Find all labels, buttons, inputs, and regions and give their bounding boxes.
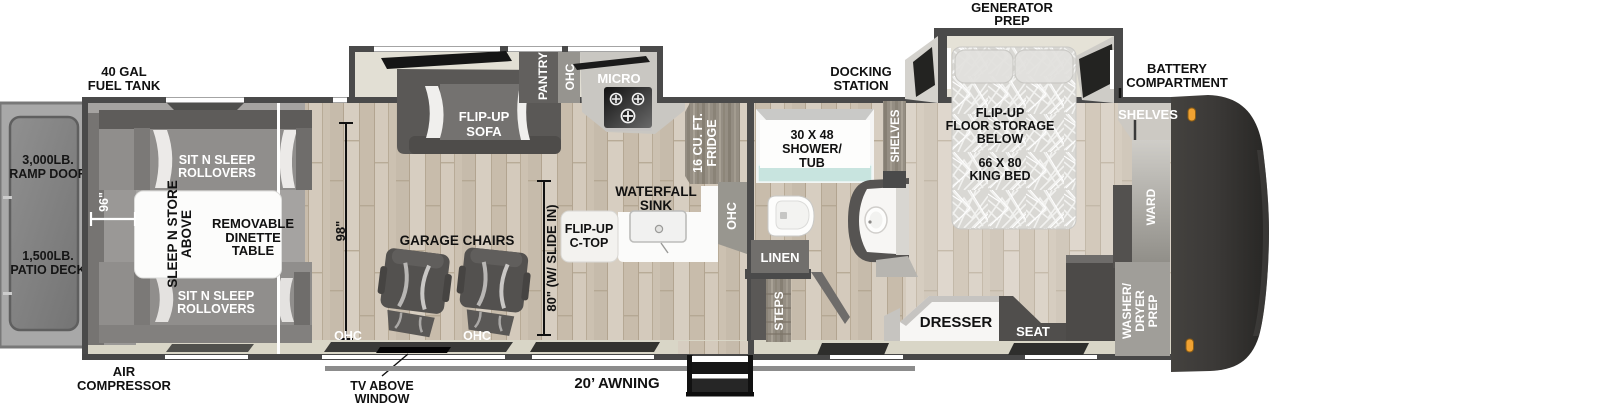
svg-text:FLIP-UP: FLIP-UP — [976, 106, 1025, 120]
svg-text:OHC: OHC — [725, 202, 739, 230]
svg-text:BATTERY: BATTERY — [1147, 61, 1207, 76]
svg-text:66 X 80: 66 X 80 — [978, 156, 1021, 170]
svg-text:SINK: SINK — [640, 198, 673, 213]
svg-text:ROLLOVERS: ROLLOVERS — [177, 302, 255, 316]
svg-text:SOFA: SOFA — [466, 124, 502, 139]
svg-text:SIT N SLEEP: SIT N SLEEP — [178, 289, 254, 303]
svg-text:COMPARTMENT: COMPARTMENT — [1126, 75, 1228, 90]
svg-text:DOCKING: DOCKING — [830, 64, 891, 79]
svg-text:STEPS: STEPS — [772, 291, 786, 330]
svg-text:SHOWER/: SHOWER/ — [782, 142, 842, 156]
svg-text:FUEL TANK: FUEL TANK — [88, 78, 161, 93]
svg-text:OHC: OHC — [563, 63, 577, 90]
svg-text:BELOW: BELOW — [977, 132, 1024, 146]
svg-text:SHELVES: SHELVES — [890, 109, 902, 162]
svg-text:PREP: PREP — [1146, 295, 1160, 328]
svg-text:SEAT: SEAT — [1016, 324, 1050, 339]
svg-text:20’ AWNING: 20’ AWNING — [574, 375, 659, 392]
svg-text:FLIP-UP: FLIP-UP — [459, 109, 510, 124]
svg-text:3,000LB.: 3,000LB. — [22, 153, 73, 167]
svg-text:ROLLOVERS: ROLLOVERS — [178, 166, 256, 180]
svg-text:COMPRESSOR: COMPRESSOR — [77, 378, 172, 393]
svg-text:FRIDGE: FRIDGE — [705, 119, 719, 166]
svg-text:KING BED: KING BED — [969, 169, 1030, 183]
svg-text:FLIP-UP: FLIP-UP — [565, 222, 614, 236]
svg-text:ABOVE: ABOVE — [179, 210, 194, 258]
svg-text:SIT N SLEEP: SIT N SLEEP — [179, 153, 255, 167]
svg-text:GARAGE CHAIRS: GARAGE CHAIRS — [400, 233, 515, 248]
svg-text:16 CU. FT.: 16 CU. FT. — [691, 113, 705, 173]
svg-text:RAMP DOOR: RAMP DOOR — [9, 167, 87, 181]
svg-text:DRESSER: DRESSER — [920, 314, 993, 331]
svg-text:TV ABOVE: TV ABOVE — [350, 379, 413, 393]
svg-text:DRYER: DRYER — [1133, 290, 1147, 332]
svg-text:TUB: TUB — [799, 156, 825, 170]
svg-text:WARD: WARD — [1144, 188, 1158, 225]
svg-text:OHC: OHC — [463, 329, 491, 343]
svg-text:PANTRY: PANTRY — [536, 52, 550, 100]
svg-text:LINEN: LINEN — [761, 250, 800, 265]
svg-text:AIR: AIR — [113, 364, 136, 379]
svg-text:SHELVES: SHELVES — [1118, 107, 1178, 122]
svg-text:WINDOW: WINDOW — [355, 392, 410, 404]
svg-text:TABLE: TABLE — [232, 243, 275, 258]
svg-text:REMOVABLE: REMOVABLE — [212, 216, 294, 231]
svg-text:1,500LB.: 1,500LB. — [22, 249, 73, 263]
svg-text:WASHER/: WASHER/ — [1120, 282, 1134, 339]
svg-text:WATERFALL: WATERFALL — [615, 184, 697, 199]
svg-text:MICRO: MICRO — [597, 71, 640, 86]
svg-text:98": 98" — [333, 221, 348, 242]
svg-text:80" (W/ SLIDE IN): 80" (W/ SLIDE IN) — [544, 204, 559, 311]
svg-text:96": 96" — [97, 192, 111, 212]
svg-text:40 GAL: 40 GAL — [101, 64, 147, 79]
svg-text:30 X 48: 30 X 48 — [790, 128, 833, 142]
svg-text:C-TOP: C-TOP — [570, 236, 609, 250]
svg-text:OHC: OHC — [334, 329, 362, 343]
svg-text:PREP: PREP — [994, 13, 1030, 28]
svg-text:STATION: STATION — [833, 78, 888, 93]
svg-text:FLOOR STORAGE: FLOOR STORAGE — [946, 119, 1055, 133]
svg-text:PATIO DECK: PATIO DECK — [10, 263, 85, 277]
svg-text:SLEEP N STORE: SLEEP N STORE — [165, 180, 180, 288]
